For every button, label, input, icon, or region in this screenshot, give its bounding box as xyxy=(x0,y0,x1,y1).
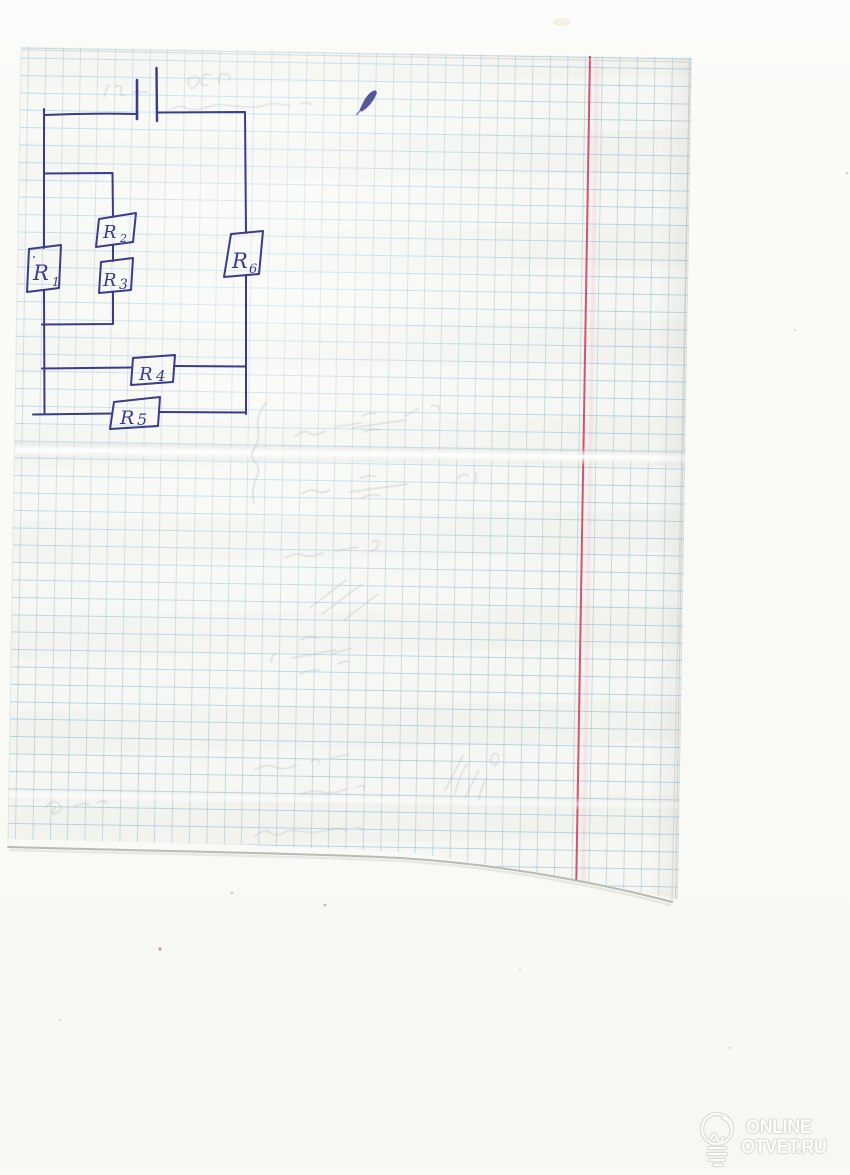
wire-r4-left xyxy=(42,368,132,369)
dust-specks xyxy=(59,18,848,1049)
watermark-line1: ONLINE xyxy=(746,1118,811,1137)
paper-right-edge xyxy=(672,63,690,901)
wire-r4-right xyxy=(174,366,246,367)
resistor-sub-r5: 5 xyxy=(137,410,147,429)
resistor-label-r4: R xyxy=(138,364,153,385)
resistor-sub-r1: 1 xyxy=(52,275,60,289)
resistor-box-r5 xyxy=(110,397,160,429)
paper-edges xyxy=(8,50,690,905)
resistor-label-r3: R xyxy=(102,270,117,291)
wire-top-right xyxy=(158,112,247,233)
watermark: ONLINE OTVET.RU xyxy=(690,1108,850,1170)
paper-top-edge xyxy=(22,50,690,62)
lightbulb-icon xyxy=(690,1108,746,1170)
paper-bottom-edge-shadow xyxy=(10,850,670,905)
wire-left-lower xyxy=(44,290,45,414)
circuit-diagram: R 1 R 2 R 3 R 4 R 5 R 6 xyxy=(27,68,376,429)
resistor-label-r2: R xyxy=(102,222,117,243)
wire-r5-left xyxy=(33,414,112,415)
wire-top-left xyxy=(44,114,136,115)
battery-icon xyxy=(137,68,157,121)
ink-blot-tail xyxy=(357,111,361,115)
scan-overlay: R 1 R 2 R 3 R 4 R 5 R 6 xyxy=(0,0,850,1170)
wire-branch-bottom xyxy=(42,292,113,325)
resistor-label-r6: R xyxy=(231,249,248,273)
resistor-label-r1: R xyxy=(32,261,49,285)
watermark-line2: OTVET.RU xyxy=(741,1138,826,1157)
resistor-sub-r6: 6 xyxy=(249,262,257,277)
ink-blot xyxy=(360,91,376,111)
paper-left-edge xyxy=(8,51,21,844)
resistor-sub-r3: 3 xyxy=(119,277,128,293)
wire-r5-right xyxy=(159,412,246,413)
paper-bottom-edge xyxy=(8,847,672,902)
ink-speck xyxy=(33,256,35,258)
resistor-label-r5: R xyxy=(119,407,134,429)
resistor-sub-r4: 4 xyxy=(155,367,166,385)
resistor-sub-r2: 2 xyxy=(119,232,127,245)
resistor-box-r4 xyxy=(131,355,175,385)
battery-plate-long xyxy=(157,68,158,121)
wire-branch-top xyxy=(44,173,113,216)
